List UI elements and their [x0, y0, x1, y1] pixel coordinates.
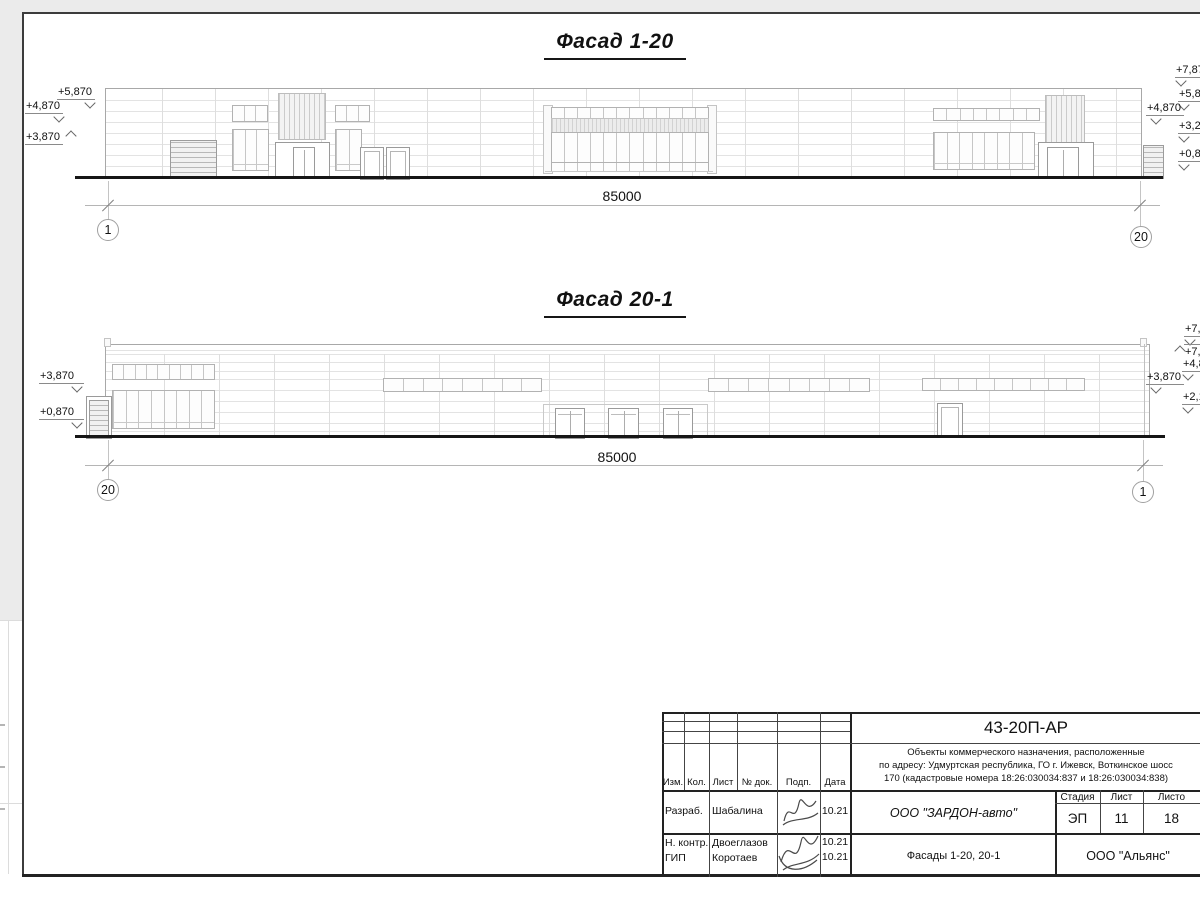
stamp-organization: ООО "Альянс" — [1056, 834, 1200, 877]
stamp-date: 10.21 — [820, 850, 850, 863]
drawing-sheet: Фасад 1-20 85000 1 — [0, 0, 1200, 900]
project-description-line: по адресу: Удмуртская республика, ГО г. … — [852, 759, 1200, 772]
stamp-stage-header: Стадия — [1055, 791, 1100, 803]
stamp-role: Разраб. — [665, 804, 709, 817]
signature — [777, 828, 821, 876]
stamp-listov-value: 18 — [1143, 805, 1200, 832]
stamp-company: ООО "ЗАРДОН-авто" — [852, 792, 1055, 833]
stamp-date: 10.21 — [820, 804, 850, 817]
stamp-date: 10.21 — [820, 835, 850, 848]
stamp-role: ГИП — [665, 851, 711, 864]
stamp-stage-value: ЭП — [1055, 805, 1100, 832]
document-code: 43-20П-АР — [852, 714, 1200, 742]
stamp-list-value: 11 — [1100, 805, 1143, 832]
stamp-sheet-title: Фасады 1-20, 20-1 — [852, 834, 1055, 877]
stamp-role: Н. контр. — [665, 836, 711, 849]
stamp-name: Коротаев — [712, 851, 778, 864]
stamp-listov-header: Листо — [1143, 791, 1200, 803]
stamp-header-izm: Изм. — [662, 776, 684, 789]
stamp-list-header: Лист — [1100, 791, 1143, 803]
stamp-grid-line — [1055, 803, 1200, 804]
title-block: 43-20П-АР Объекты коммерческого назначен… — [0, 0, 1200, 900]
stamp-grid-line — [662, 731, 850, 732]
stamp-header-list: Лист — [709, 776, 737, 789]
stamp-border — [662, 712, 664, 877]
stamp-name: Двоеглазов — [712, 836, 778, 849]
stamp-header-doc: № док. — [737, 776, 777, 789]
stamp-header-data: Дата — [820, 776, 850, 789]
signature — [780, 793, 820, 831]
stamp-grid-line — [662, 743, 1200, 744]
project-description: Объекты коммерческого назначения, распол… — [852, 746, 1200, 785]
stamp-grid-line — [662, 721, 850, 722]
stamp-header-kol: Кол. — [684, 776, 709, 789]
project-description-line: Объекты коммерческого назначения, распол… — [852, 746, 1200, 759]
project-description-line: 170 (кадастровые номера 18:26:030034:837… — [852, 772, 1200, 785]
stamp-name: Шабалина — [712, 804, 776, 817]
stamp-header-podp: Подп. — [777, 776, 820, 789]
